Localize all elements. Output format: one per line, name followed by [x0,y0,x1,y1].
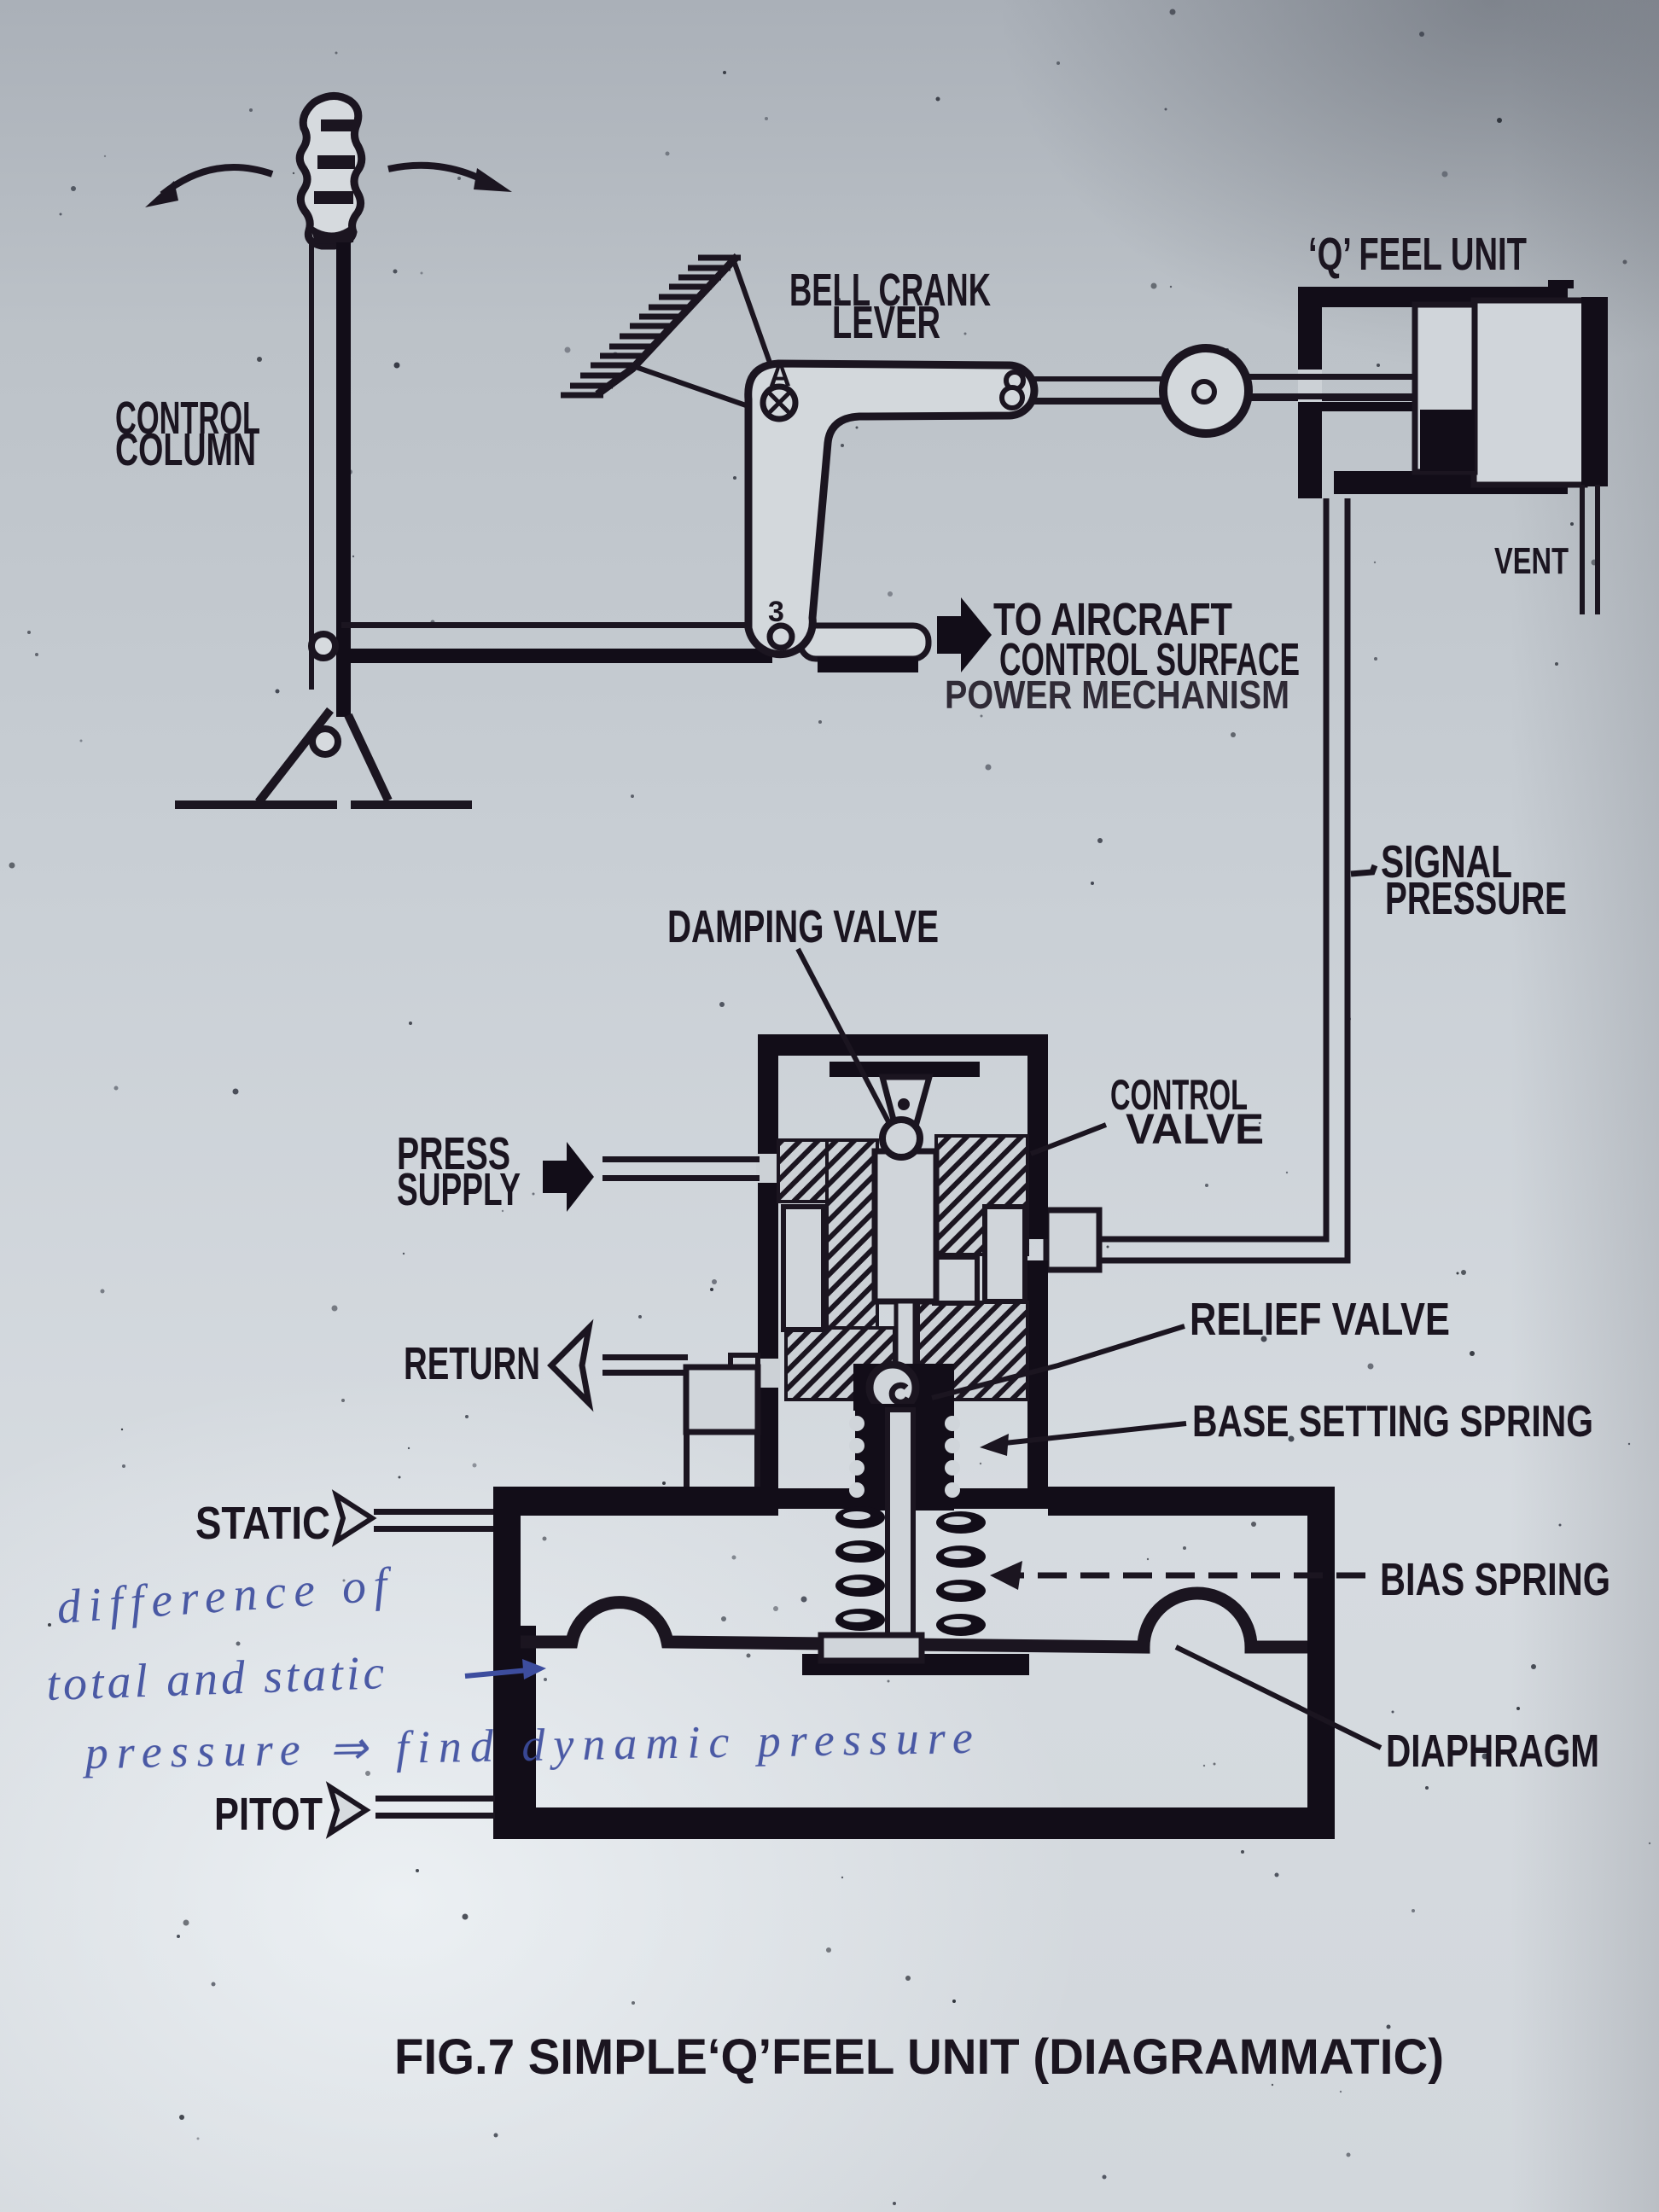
svg-text:LEVER: LEVER [832,297,940,348]
svg-text:BIAS SPRING: BIAS SPRING [1380,1554,1610,1605]
svg-text:A: A [769,358,791,393]
svg-text:RETURN: RETURN [404,1338,540,1389]
svg-text:RELIEF VALVE: RELIEF VALVE [1190,1294,1450,1345]
svg-text:COLUMN: COLUMN [115,424,256,475]
svg-text:‘Q’ FEEL UNIT: ‘Q’ FEEL UNIT [1308,229,1527,280]
svg-text:VALVE: VALVE [1126,1105,1264,1153]
svg-text:pressure ⇒ find dynamic pressu: pressure ⇒ find dynamic pressure [81,1712,981,1778]
svg-text:difference of: difference of [55,1557,397,1633]
svg-text:total and static: total and static [45,1646,388,1711]
svg-text:FIG.7 SIMPLE‘Q’FEEL UNIT (DIAG: FIG.7 SIMPLE‘Q’FEEL UNIT (DIAGRAMMATIC) [394,2029,1444,2085]
svg-text:DAMPING VALVE: DAMPING VALVE [667,901,939,952]
svg-text:SUPPLY: SUPPLY [397,1164,521,1215]
svg-text:PITOT: PITOT [214,1789,323,1840]
svg-text:DIAPHRAGM: DIAPHRAGM [1386,1726,1599,1777]
svg-text:POWER MECHANISM: POWER MECHANISM [945,672,1289,717]
svg-text:STATIC: STATIC [195,1498,330,1549]
svg-text:PRESSURE: PRESSURE [1385,873,1567,924]
svg-text:BASE SETTING SPRING: BASE SETTING SPRING [1192,1397,1593,1447]
svg-text:VENT: VENT [1494,540,1569,582]
